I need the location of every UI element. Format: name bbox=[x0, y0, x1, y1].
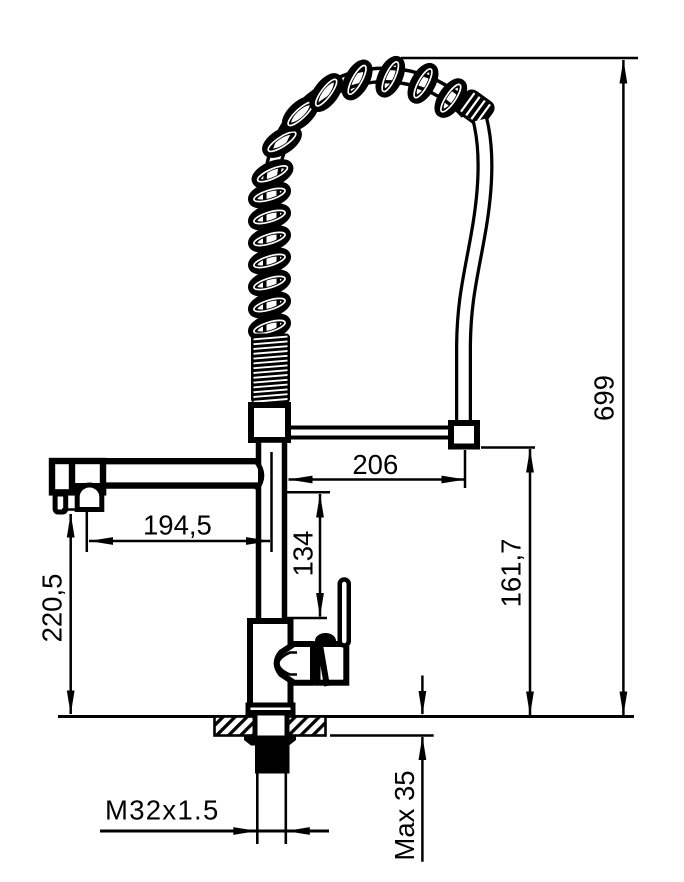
svg-text:194,5: 194,5 bbox=[143, 510, 212, 541]
svg-text:206: 206 bbox=[352, 449, 398, 480]
svg-text:M32x1.5: M32x1.5 bbox=[105, 795, 220, 826]
svg-text:220,5: 220,5 bbox=[37, 574, 68, 643]
svg-text:134: 134 bbox=[288, 531, 319, 577]
svg-text:Max 35: Max 35 bbox=[389, 770, 420, 860]
svg-text:699: 699 bbox=[589, 375, 620, 421]
svg-text:161,7: 161,7 bbox=[496, 539, 527, 608]
